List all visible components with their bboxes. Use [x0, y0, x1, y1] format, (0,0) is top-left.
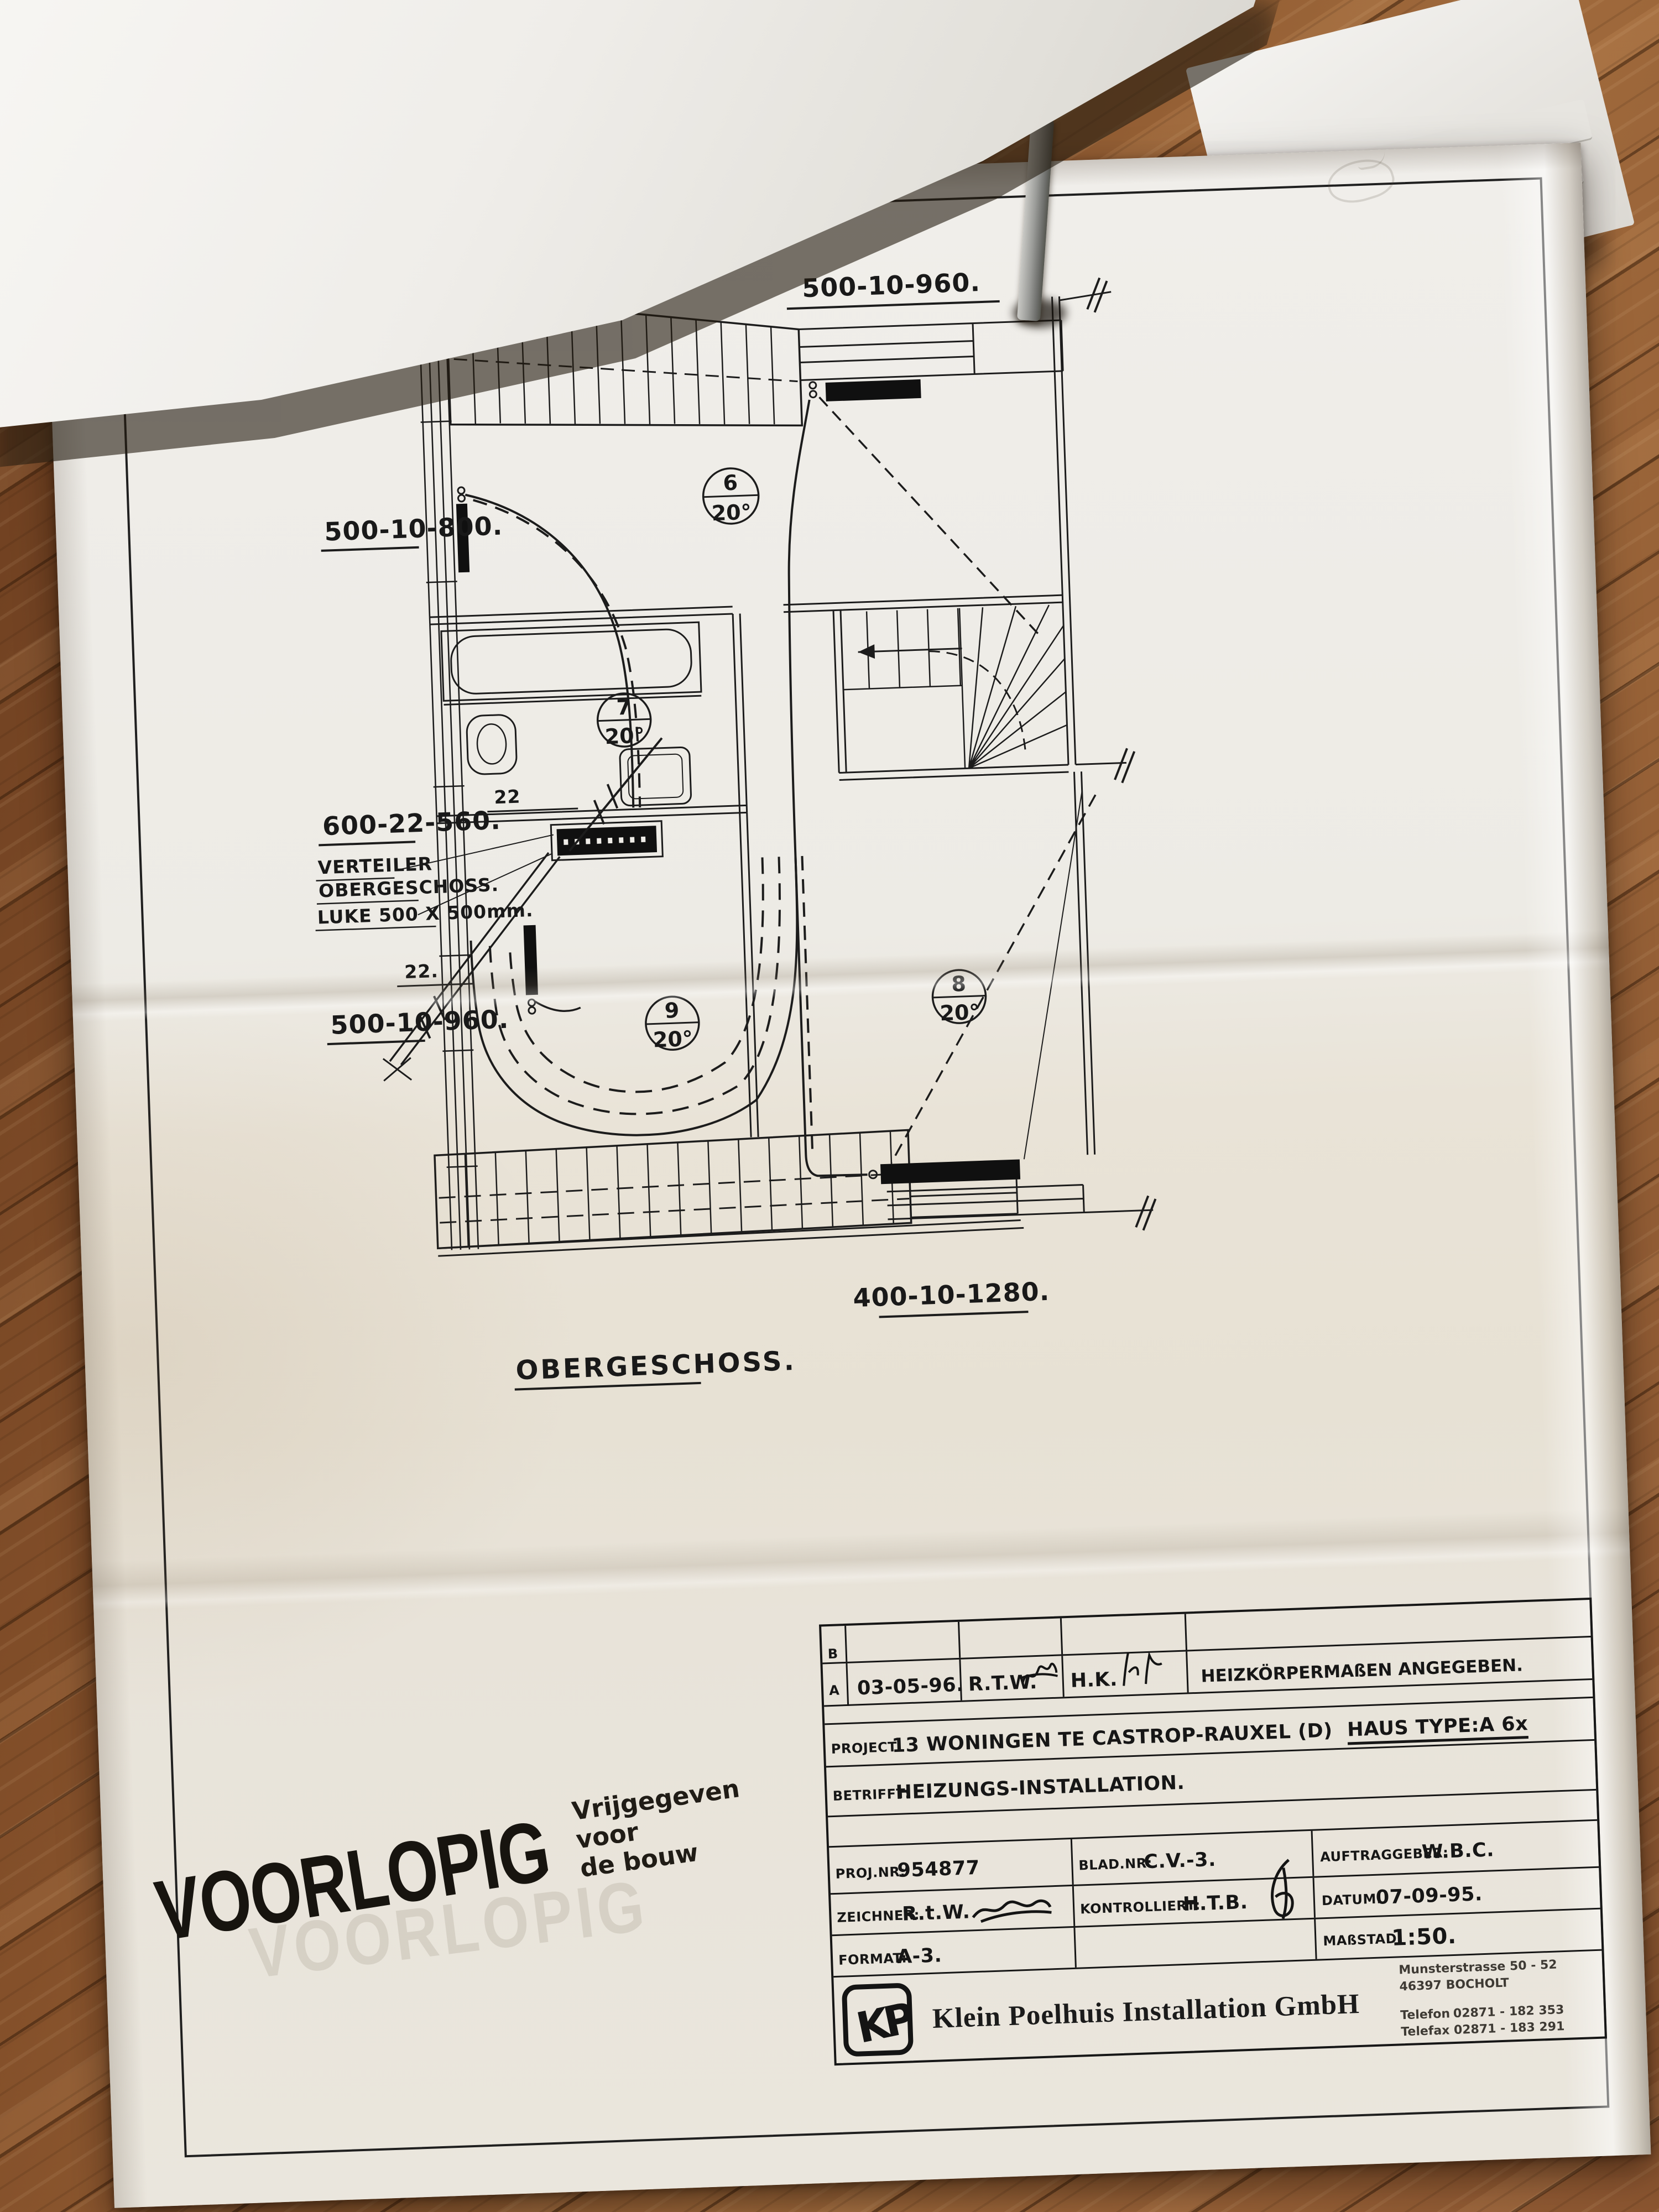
auftraggeber-value: W.B.C.	[1421, 1839, 1494, 1864]
svg-text:20°: 20°	[653, 1026, 693, 1052]
bladnr-value: C.V.-3.	[1144, 1849, 1217, 1874]
radiator-top	[826, 379, 921, 401]
datum-label: DATUM:	[1321, 1891, 1382, 1908]
revision-marker-b: B	[821, 1626, 846, 1664]
dim-label-mid: 600-22-560.	[322, 805, 501, 841]
revision-marker-a: A	[822, 1663, 847, 1707]
kp-monogram-icon: KP	[852, 1994, 915, 2053]
room-bubble-9: 9 20°	[645, 996, 700, 1052]
svg-text:6: 6	[723, 471, 738, 495]
company-logo: KP	[842, 1983, 914, 2057]
massstab-label: MAßSTAD:	[1323, 1931, 1402, 1949]
massstab-value: 1:50.	[1391, 1923, 1457, 1951]
projnr-label: PROJ.NR:	[835, 1864, 906, 1882]
signature-zeichner	[969, 1892, 1053, 1926]
verteiler-label-1: VERTEILER	[317, 853, 433, 878]
format-value: A-3.	[896, 1944, 942, 1968]
zeichner-value: R.t.W.	[902, 1901, 971, 1925]
betrifft-value: HEIZUNGS-INSTALLATION.	[895, 1772, 1185, 1804]
radiator-bottom	[880, 1160, 1020, 1185]
datum-value: 07-09-95.	[1375, 1883, 1483, 1909]
revision-drawn: R.T.W.	[961, 1656, 1064, 1700]
room-bubble-6: 6 20°	[702, 467, 759, 525]
verteiler-label-2: OBERGESCHOSS.	[318, 874, 499, 901]
svg-text:20°: 20°	[711, 500, 752, 525]
drawing-sheet: 500-10-960. 6 20°	[44, 143, 1651, 2208]
projnr-value: 954877	[897, 1857, 980, 1882]
bathtub	[450, 629, 692, 695]
company-address: Munsterstrasse 50 - 52 46397 BOCHOLT Tel…	[1399, 1957, 1565, 2041]
svg-text:7: 7	[616, 695, 632, 720]
bladnr-label: BLAD.NR:	[1078, 1855, 1152, 1874]
haus-type: HAUS TYPE:A 6x	[1347, 1713, 1529, 1745]
dim-label-bottom: 400-10-1280.	[853, 1276, 1050, 1313]
svg-text:20°: 20°	[604, 723, 645, 749]
signature-rtw	[1019, 1661, 1060, 1691]
room-bubble-7: 7 20°	[597, 692, 651, 749]
revision-checked: H.K.	[1063, 1651, 1188, 1697]
svg-text:20°: 20°	[940, 1000, 980, 1025]
company-name: Klein Poelhuis Installation GmbH	[932, 1988, 1360, 2035]
signature-kontrolliert	[1261, 1856, 1302, 1924]
revision-date: 03-05-96.	[847, 1660, 962, 1704]
kontrolliert-value: H.T.B.	[1182, 1891, 1248, 1916]
paper-shading	[72, 980, 595, 1717]
title-block: B A 03-05-96. R.T.W. H.K.	[819, 1598, 1607, 2065]
signature-hk	[1116, 1649, 1167, 1689]
dim-label-left: 500-10-800.	[324, 510, 503, 546]
luke-label: LUKE 500 X 500mm.	[317, 899, 534, 928]
